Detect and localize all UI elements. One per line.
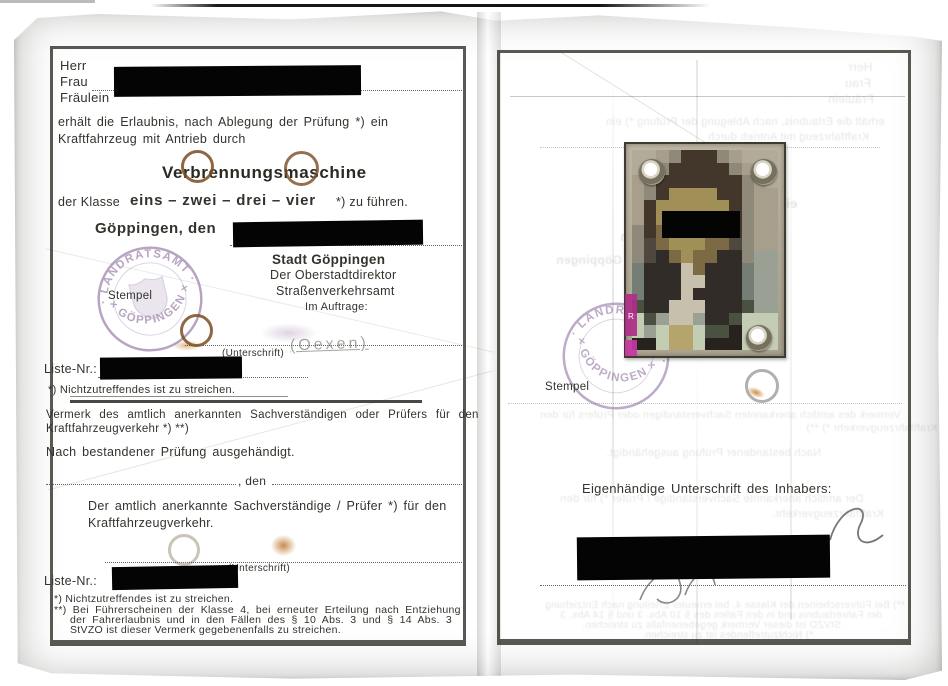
photo-pixel: [717, 313, 729, 326]
photo-pixel: [754, 238, 766, 251]
photo-pixel: [632, 263, 644, 276]
photo-pixel: [766, 238, 778, 251]
photo-pixel: [644, 338, 656, 351]
photo-pixel: [766, 213, 778, 226]
photo-pixel: [644, 325, 656, 338]
photo-pixel: [681, 300, 693, 313]
photo-pixel: [717, 175, 729, 188]
showthrough-text: Frau: [845, 76, 871, 90]
salutation-fraeulein: Fräulein: [60, 91, 109, 106]
section-rule: [70, 400, 422, 403]
photo-pixel: [669, 175, 681, 188]
photo-pixel: [705, 325, 717, 338]
photo-pixel: [754, 250, 766, 263]
photo-pixel: [632, 250, 644, 263]
class-suffix-text: *) zu führen.: [336, 195, 408, 209]
photo-pixel: [705, 338, 717, 351]
salutation-frau: Frau: [60, 75, 88, 90]
photo-pixel: [644, 188, 656, 201]
photo-pixel: [742, 213, 754, 226]
photo-pixel: [766, 288, 778, 301]
photo-pixel: [632, 213, 644, 226]
photo-pixel: [644, 313, 656, 326]
photo-pixel: [705, 313, 717, 326]
photo-pixel: [766, 225, 778, 238]
photo-pixel: [669, 300, 681, 313]
showthrough-text: Nach bestandener Prüfung ausgehändigt.: [606, 447, 821, 459]
photo-pixel: [742, 225, 754, 238]
photo-pixel: [729, 325, 741, 338]
thin-rule: [70, 396, 288, 397]
photo-pixel: [729, 313, 741, 326]
photo-pixel: [705, 288, 717, 301]
owner-signature-line: [540, 585, 906, 586]
photo-pixel: [644, 200, 656, 213]
photo-pixel: [705, 300, 717, 313]
redaction-bar-date: [233, 220, 423, 248]
photo-pixel: [669, 338, 681, 351]
liste-nr-label-2: Liste-Nr.:: [44, 574, 97, 588]
rust-ring: [284, 151, 319, 186]
class-values-text: eins – zwei – drei – vier: [130, 192, 316, 209]
photo-pixel: [766, 263, 778, 276]
redaction-bar-name: [114, 65, 361, 97]
photo-pixel: [693, 150, 705, 163]
photo-pixel: [656, 238, 668, 251]
photo-pixel: [766, 275, 778, 288]
photo-pixel: [693, 188, 705, 201]
photo-pixel: [717, 150, 729, 163]
salutation-herr: Herr: [60, 59, 86, 74]
photo-pixel: [705, 238, 717, 251]
rivet-eyelet: [746, 325, 772, 351]
photo-pixel: [644, 225, 656, 238]
photo-pixel: [669, 163, 681, 176]
photo-pixel: [705, 275, 717, 288]
photo-pixel: [681, 325, 693, 338]
photo-pixel: [681, 288, 693, 301]
scan-smudge: [0, 0, 95, 3]
photo-pixel: [717, 275, 729, 288]
photo-pixel: [766, 250, 778, 263]
showthrough-text: Fräulein: [828, 92, 874, 106]
date-line-left-segment: [46, 484, 236, 485]
photo-pixel: [656, 250, 668, 263]
photo-pixel: [656, 263, 668, 276]
photo-pixel: [766, 313, 778, 326]
photo-pixel: [681, 238, 693, 251]
photo-pixel: [693, 238, 705, 251]
photo-pixel: [705, 163, 717, 176]
photo-pixel: [742, 200, 754, 213]
authority-city: Stadt Göppingen: [272, 252, 385, 268]
photo-pixel: [632, 150, 644, 163]
photo-pixel: [669, 238, 681, 251]
permission-text-1: erhält die Erlaubnis, nach Ablegung der …: [58, 115, 388, 129]
revenue-stamp-strip: [625, 340, 637, 356]
photo-pixel: [681, 250, 693, 263]
photo-pixel: [729, 288, 741, 301]
showthrough-text: *) Nichtzutreffendes ist zu streichen.: [642, 630, 813, 641]
photo-pixel: [717, 250, 729, 263]
photo-pixel: [729, 250, 741, 263]
photo-pixel: [717, 325, 729, 338]
issued-text: Nach bestandener Prüfung ausgehändigt.: [46, 445, 295, 459]
photo-pixel: [693, 325, 705, 338]
photo-pixel: [754, 275, 766, 288]
photo-pixel: [754, 263, 766, 276]
photo-pixel: [717, 338, 729, 351]
photo-pixel: [717, 163, 729, 176]
den-label: , den: [238, 475, 266, 489]
photo-pixel: [656, 325, 668, 338]
photo-pixel: [705, 150, 717, 163]
photo-pixel: [644, 275, 656, 288]
authority-im-auftrage: Im Auftrage:: [305, 301, 368, 314]
redaction-bar-eyes: [662, 211, 740, 238]
scan-edge-line: [150, 4, 710, 7]
photo-pixel: [754, 200, 766, 213]
rivet-eyelet: [639, 159, 665, 185]
vermerk-text-2: Kraftfahrzeugverkehr *) **): [46, 423, 189, 436]
photo-pixel: [681, 338, 693, 351]
class-prefix-text: der Klasse: [58, 195, 120, 209]
photo-pixel: [693, 175, 705, 188]
photo-pixel: [729, 163, 741, 176]
stamp-label-right: Stempel: [545, 381, 589, 394]
examiner-text-2: Kraftfahrzeugverkehr.: [88, 516, 214, 530]
permission-text-2: Kraftfahrzeug mit Antrieb durch: [58, 132, 246, 146]
photo-pixel: [669, 188, 681, 201]
photo-pixel: [766, 300, 778, 313]
photo-pixel: [705, 250, 717, 263]
photo-pixel: [693, 313, 705, 326]
photo-pixel: [693, 163, 705, 176]
photo-pixel: [742, 188, 754, 201]
photo-pixel: [754, 213, 766, 226]
photo-pixel: [729, 150, 741, 163]
photo-pixel: [705, 263, 717, 276]
photo-pixel: [681, 188, 693, 201]
showthrough-text: erhält die Erlaubnis, nach Ablegung der …: [606, 116, 885, 128]
photo-pixel: [681, 275, 693, 288]
rust-ring: [180, 314, 213, 347]
photo-pixel: [742, 288, 754, 301]
photo-pixel: [729, 175, 741, 188]
photo-pixel: [754, 300, 766, 313]
photo-pixel: [644, 238, 656, 251]
authority-director: Der Oberstadtdirektor: [270, 268, 396, 282]
photo-pixel: [644, 300, 656, 313]
signature-ghost-name: (Oexen): [290, 335, 369, 356]
showthrough-text: Herr: [848, 60, 873, 74]
photo-pixel: [669, 263, 681, 276]
photo-pixel: [705, 188, 717, 201]
photo-pixel: [742, 275, 754, 288]
photo-pixel: [644, 250, 656, 263]
redaction-bar-signature: [577, 535, 830, 581]
faint-line: [508, 403, 902, 404]
rust-ring: [181, 150, 214, 183]
liste-nr-label-1: Liste-Nr.:: [44, 362, 97, 376]
photo-pixel: [693, 300, 705, 313]
showthrough-text: Vermerk des amtlich anerkannten Sachvers…: [540, 409, 900, 421]
photo-pixel: [729, 338, 741, 351]
photo-pixel: [754, 288, 766, 301]
photo-pixel: [742, 250, 754, 263]
redaction-bar-liste2: [112, 565, 238, 590]
photo-pixel: [669, 313, 681, 326]
photo-pixel: [681, 263, 693, 276]
photo-pixel: [766, 188, 778, 201]
photo-pixel: [681, 175, 693, 188]
photo-pixel: [632, 200, 644, 213]
revenue-stamp-letter: R: [628, 312, 634, 321]
photo-pixel: [729, 263, 741, 276]
photo-pixel: [669, 150, 681, 163]
photo-pixel: [754, 188, 766, 201]
photo-pixel: [742, 313, 754, 326]
photo-pixel: [656, 300, 668, 313]
photo-pixel: [742, 300, 754, 313]
photo-pixel: [669, 250, 681, 263]
photo-pixel: [644, 213, 656, 226]
photo-pixel: [656, 188, 668, 201]
photo-pixel: [681, 150, 693, 163]
photo-pixel: [754, 225, 766, 238]
vermerk-text-1: Vermerk des amtlich anerkannten Sachvers…: [46, 409, 479, 422]
footnote-strike-text: *) Nichtzutreffendes ist zu streichen.: [48, 384, 235, 397]
photo-pixel: [729, 188, 741, 201]
photo-pixel: [742, 238, 754, 251]
photo-pixel: [766, 200, 778, 213]
photo-pixel: [669, 275, 681, 288]
date-line-right-segment: [272, 484, 462, 485]
photo-pixel: [644, 288, 656, 301]
photo-pixel: [656, 338, 668, 351]
photo-pixel: [693, 263, 705, 276]
photo-pixel: [656, 288, 668, 301]
photo-pixel: [681, 163, 693, 176]
place-date-label: Göppingen, den: [95, 220, 216, 237]
photo-pixel: [729, 238, 741, 251]
photo-pixel: [754, 313, 766, 326]
photo-pixel: [681, 313, 693, 326]
photo-pixel: [742, 150, 754, 163]
examiner-text-1: Der amtlich anerkannte Sachverständige /…: [88, 499, 447, 513]
photo-pixel: [632, 188, 644, 201]
photo-pixel: [632, 238, 644, 251]
scanned-document: Herr Frau Fräulein erhält die Erlaubnis,…: [0, 0, 948, 686]
photo-pixel: [717, 263, 729, 276]
photo-pixel: [693, 288, 705, 301]
photo-pixel: [717, 188, 729, 201]
photo-pixel: [693, 338, 705, 351]
photo-pixel: [729, 275, 741, 288]
photo-pixel: [693, 250, 705, 263]
photo-pixel: [717, 238, 729, 251]
showthrough-text: Kraftfahrzeugverkehr *) **): [806, 422, 937, 434]
photo-pixel: [717, 300, 729, 313]
photo-pixel: [632, 225, 644, 238]
photo-pixel: [644, 263, 656, 276]
rust-blob: [271, 535, 296, 556]
photo-pixel: [656, 275, 668, 288]
photo-pixel: [632, 275, 644, 288]
photo-pixel: [669, 325, 681, 338]
photo-pixel: [693, 275, 705, 288]
photo-pixel: [656, 313, 668, 326]
stamp-label-left: Stempel: [108, 290, 152, 303]
photo-pixel: [742, 263, 754, 276]
authority-office: Straßenverkehrsamt: [276, 284, 395, 298]
photo-pixel: [717, 288, 729, 301]
photo-pixel: [705, 175, 717, 188]
photo-pixel: [669, 288, 681, 301]
footnote-2c: StVZO ist dieser Vermerk gegebenenfalls …: [70, 624, 341, 636]
photo-pixel: [729, 300, 741, 313]
rivet-eyelet: [751, 159, 777, 185]
